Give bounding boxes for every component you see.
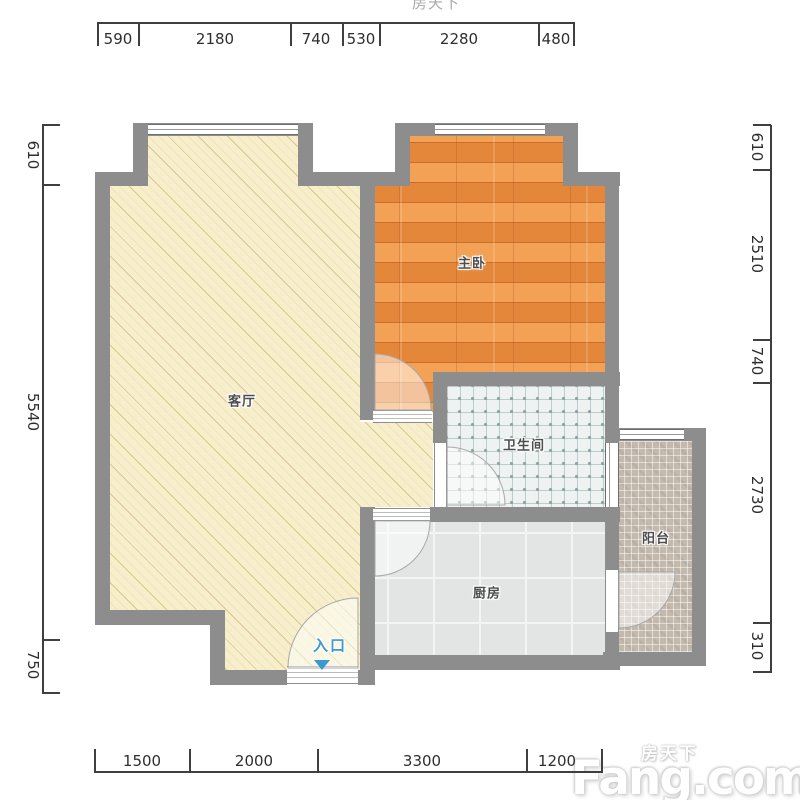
dim-tick: [753, 671, 771, 673]
dim-tick: [290, 22, 292, 46]
dim-tick: [138, 22, 140, 46]
dim-value: 2000: [235, 752, 273, 770]
dim-value: 2180: [196, 30, 234, 48]
room-label-kitchen: 厨房: [473, 583, 501, 602]
dim-tick: [573, 22, 575, 46]
dim-value: 610: [24, 141, 42, 170]
dim-line: [42, 125, 44, 694]
kitchen-door-arc: [375, 521, 430, 576]
dim-value: 590: [104, 30, 133, 48]
dim-value: 1200: [538, 752, 576, 770]
dim-value: 610: [748, 133, 766, 162]
dim-line: [770, 125, 772, 673]
dim-value: 1500: [123, 752, 161, 770]
dim-value: 5540: [24, 393, 42, 431]
dim-value: 2730: [748, 476, 766, 514]
room-label-living: 客厅: [228, 391, 256, 410]
bedroom-door-arc: [375, 354, 431, 410]
bathroom-door-arc: [447, 447, 505, 505]
dim-tick: [97, 22, 99, 46]
room-label-balcony: 阳台: [642, 528, 670, 547]
balcony-door-arc: [619, 572, 675, 628]
dim-value: 3300: [403, 752, 441, 770]
dim-value: 750: [24, 651, 42, 680]
room-label-bathroom: 卫生间: [503, 435, 545, 454]
dim-value: 740: [302, 30, 331, 48]
dim-tick: [753, 622, 771, 624]
dim-tick: [42, 184, 60, 186]
room-label-bedroom: 主卧: [458, 253, 486, 272]
dim-tick: [42, 639, 60, 641]
dim-tick: [94, 749, 96, 773]
dim-tick: [342, 22, 344, 46]
entrance-arrow-icon: [314, 660, 330, 670]
entrance-label: 入口: [313, 635, 347, 656]
dim-tick: [753, 339, 771, 341]
dim-tick: [753, 124, 771, 126]
dim-value: 2280: [440, 30, 478, 48]
dim-tick: [753, 382, 771, 384]
dim-value: 740: [748, 347, 766, 376]
dim-value: 480: [542, 30, 571, 48]
door-arcs-layer: [0, 0, 800, 800]
dim-tick: [379, 22, 381, 46]
dim-tick: [189, 749, 191, 773]
dim-tick: [753, 169, 771, 171]
dim-value: 530: [347, 30, 376, 48]
dim-value: 2510: [748, 235, 766, 273]
entrance-door-arc: [288, 598, 358, 668]
dim-tick: [538, 22, 540, 46]
dim-tick: [601, 749, 603, 773]
floor-plan-canvas: 房天下 客厅 主卧 卫生间 厨房: [0, 0, 800, 800]
dim-tick: [526, 749, 528, 773]
dim-tick: [42, 692, 60, 694]
dim-line: [98, 22, 575, 24]
dim-value: 310: [748, 632, 766, 661]
dim-tick: [317, 749, 319, 773]
dim-tick: [42, 124, 60, 126]
